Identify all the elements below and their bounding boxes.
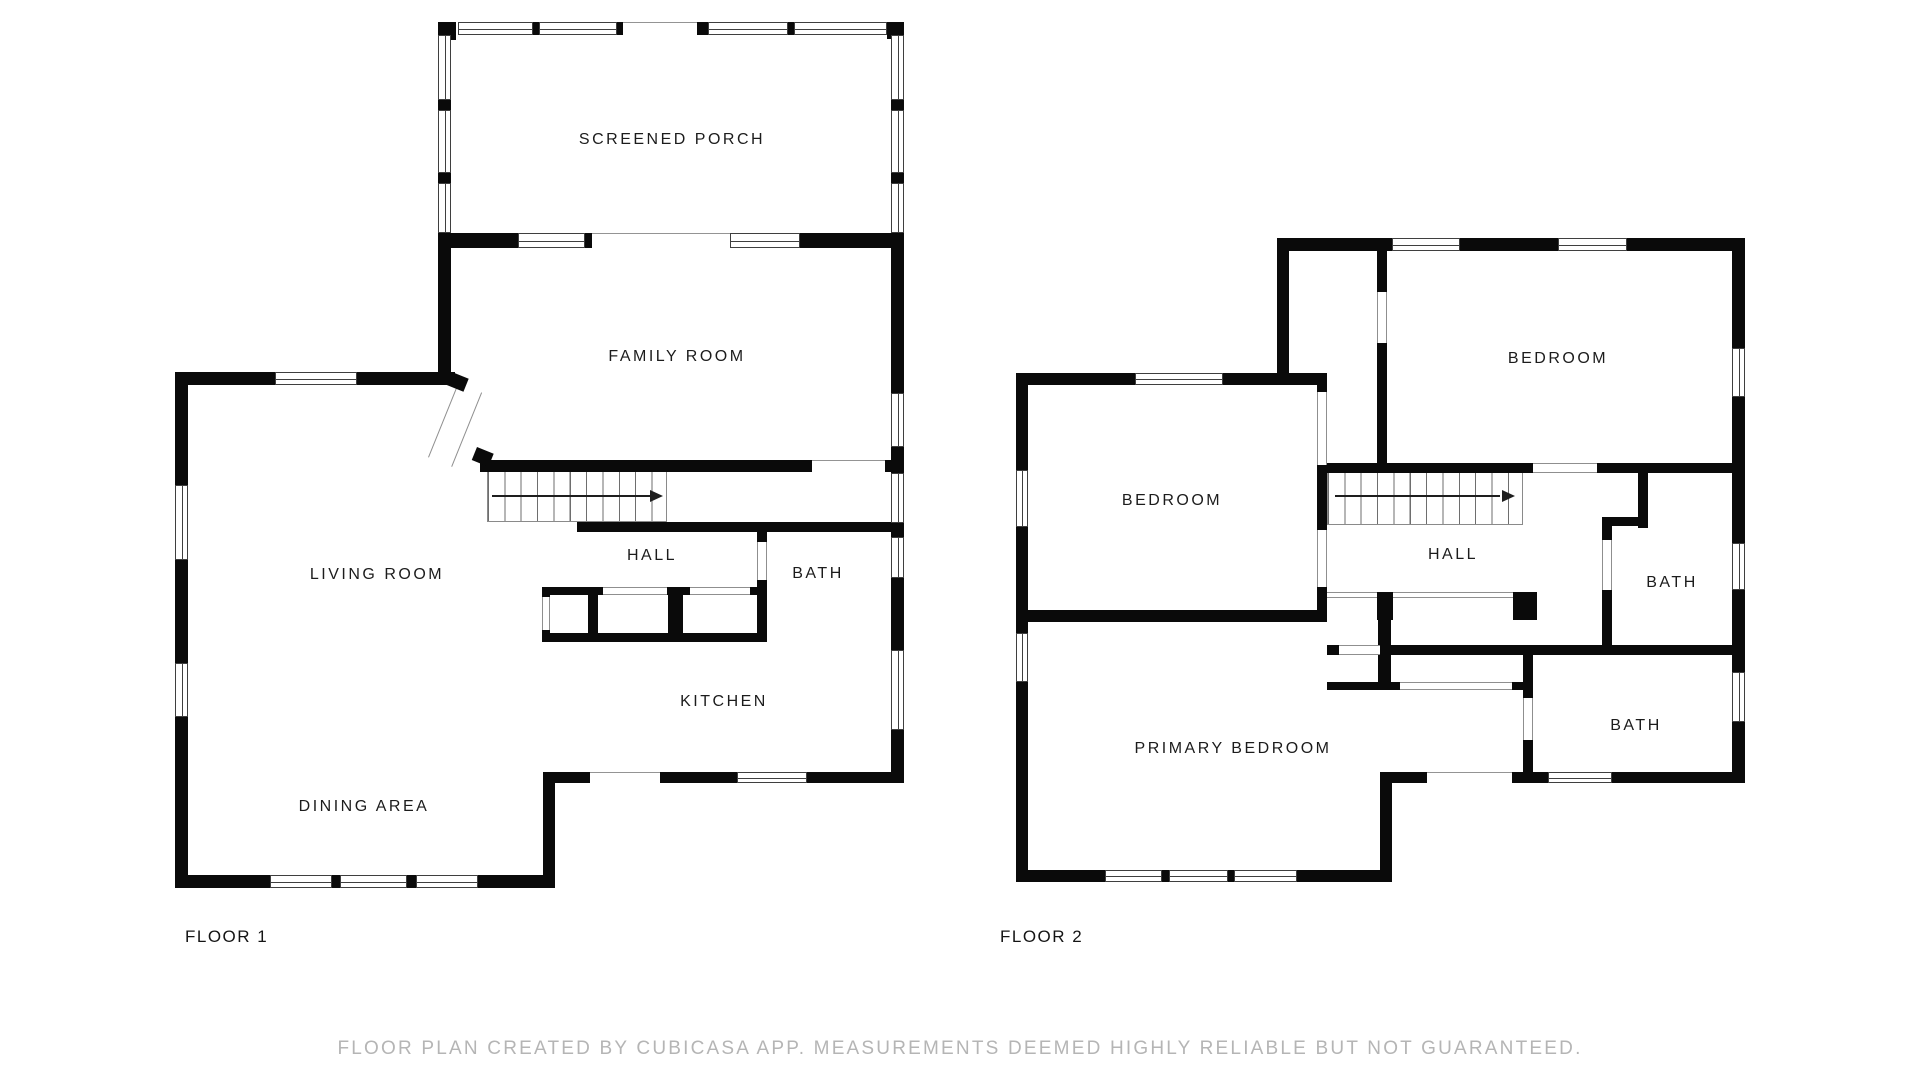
wall-segment — [1016, 870, 1105, 882]
wall-segment — [885, 460, 904, 472]
room-label-bedroom-northeast: BEDROOM — [1508, 350, 1608, 368]
floor1-label: FLOOR 1 — [185, 927, 268, 947]
wall-segment — [1607, 517, 1648, 526]
window — [518, 233, 585, 248]
room-label-bedroom-west: BEDROOM — [1122, 492, 1222, 510]
wall-opening — [623, 22, 697, 35]
wall-segment — [1297, 870, 1392, 882]
window — [1234, 870, 1297, 882]
wall-segment — [891, 578, 904, 650]
window — [891, 473, 904, 523]
wall-segment — [1016, 373, 1135, 385]
window — [1169, 870, 1228, 882]
door-opening — [1393, 592, 1513, 598]
wall-segment — [542, 633, 767, 642]
wall-segment — [891, 100, 904, 110]
wall-opening — [590, 772, 660, 783]
window — [175, 485, 188, 560]
wall-opening — [592, 233, 730, 248]
window — [438, 35, 451, 100]
wall-segment — [585, 233, 592, 248]
window — [891, 650, 904, 730]
window — [891, 537, 904, 578]
wall-segment — [1377, 343, 1387, 465]
wall-opening — [1427, 772, 1512, 783]
window — [1732, 672, 1745, 722]
door-opening — [1602, 540, 1612, 590]
room-label-hall-f2: HALL — [1428, 546, 1478, 564]
wall-segment — [1317, 385, 1327, 392]
door-opening — [690, 587, 750, 595]
wall-segment — [1597, 463, 1745, 473]
door-opening — [1327, 592, 1377, 598]
wall-segment — [1380, 645, 1745, 655]
wall-segment — [1327, 463, 1533, 473]
window — [1392, 238, 1460, 251]
wall-segment — [480, 460, 812, 472]
window — [1558, 238, 1627, 251]
room-label-hall-f1: HALL — [627, 547, 677, 565]
wall-segment — [175, 372, 188, 888]
wall-segment — [438, 100, 451, 110]
wall-segment — [1460, 238, 1558, 251]
door-opening — [603, 587, 667, 595]
window — [438, 183, 451, 233]
window — [891, 393, 904, 447]
wall-segment — [1162, 870, 1169, 882]
wall-segment — [1523, 645, 1533, 698]
window — [416, 875, 478, 888]
room-label-primary-bedroom: PRIMARY BEDROOM — [1135, 740, 1332, 758]
wall-segment — [750, 587, 767, 595]
wall-segment — [407, 875, 416, 888]
room-label-bath-f1: BATH — [792, 565, 843, 583]
wall-segment — [1378, 592, 1391, 690]
wall-segment — [1513, 592, 1537, 620]
wall-segment — [1380, 772, 1427, 783]
window — [891, 110, 904, 173]
wall-segment — [542, 587, 550, 597]
window — [270, 875, 332, 888]
room-label-bath-south: BATH — [1610, 717, 1661, 735]
wall-segment — [1377, 248, 1387, 292]
room-label-bath-east: BATH — [1646, 574, 1697, 592]
floor2-label: FLOOR 2 — [1000, 927, 1083, 947]
door-opening — [542, 597, 550, 630]
window — [1548, 772, 1612, 783]
room-label-kitchen: KITCHEN — [680, 693, 768, 711]
door-opening — [1339, 645, 1380, 655]
wall-opening — [812, 460, 885, 472]
staircase — [1327, 473, 1523, 525]
stair-direction-arrow-line — [1335, 495, 1500, 497]
floor-plan-canvas: SCREENED PORCH FAMILY ROOM LIVING ROOM H… — [0, 0, 1920, 1080]
wall-segment — [1317, 465, 1327, 530]
window — [737, 772, 807, 783]
window — [539, 22, 617, 35]
room-label-living-room: LIVING ROOM — [310, 566, 444, 584]
window — [1732, 348, 1745, 397]
window — [175, 663, 188, 717]
door-opening — [1523, 698, 1533, 740]
window — [275, 372, 357, 385]
wall-segment — [1277, 238, 1289, 385]
window — [891, 183, 904, 233]
wall-segment — [1327, 645, 1339, 655]
window — [1016, 633, 1028, 682]
door-opening — [1533, 463, 1597, 473]
door-opening — [1377, 292, 1387, 343]
wall-segment — [1512, 772, 1548, 783]
window — [438, 110, 451, 173]
wall-segment — [543, 772, 555, 888]
wall-segment — [332, 875, 340, 888]
wall-segment — [660, 772, 737, 783]
window — [1135, 373, 1223, 385]
window — [891, 35, 904, 100]
window — [794, 22, 887, 35]
wall-segment — [697, 22, 708, 35]
wall-segment — [1016, 373, 1028, 882]
window — [340, 875, 407, 888]
room-label-screened-porch: SCREENED PORCH — [579, 131, 765, 149]
wall-segment — [891, 233, 904, 393]
wall-segment — [1277, 238, 1392, 251]
door-opening — [1317, 530, 1327, 587]
wall-segment — [438, 233, 518, 248]
room-label-dining-area: DINING AREA — [299, 798, 430, 816]
wall-segment — [175, 875, 270, 888]
door-opening — [757, 542, 767, 580]
wall-segment — [1016, 610, 1327, 622]
disclaimer-text: FLOOR PLAN CREATED BY CUBICASA APP. MEAS… — [337, 1038, 1582, 1060]
wall-segment — [891, 173, 904, 183]
wall-segment — [1612, 772, 1745, 783]
stair-direction-arrow-head — [650, 490, 663, 502]
window — [708, 22, 788, 35]
door-opening — [1317, 392, 1327, 465]
wall-segment — [1627, 238, 1745, 251]
wall-segment — [1602, 517, 1612, 540]
wall-segment — [1223, 373, 1327, 385]
door-opening — [1400, 682, 1512, 690]
wall-segment — [577, 522, 904, 532]
window — [458, 22, 533, 35]
stair-direction-arrow-head — [1502, 490, 1515, 502]
wall-segment — [478, 875, 555, 888]
wall-segment — [1327, 682, 1400, 690]
wall-segment — [1380, 772, 1392, 882]
wall-segment — [438, 233, 451, 385]
wall-segment — [175, 372, 275, 385]
wall-segment — [438, 173, 451, 183]
wall-segment — [807, 772, 904, 783]
window — [1105, 870, 1162, 882]
window — [1732, 543, 1745, 590]
staircase — [487, 472, 667, 522]
wall-segment — [1523, 740, 1533, 772]
room-label-family-room: FAMILY ROOM — [608, 348, 745, 366]
stair-direction-arrow-line — [492, 495, 650, 497]
wall-segment — [800, 233, 904, 248]
window — [730, 233, 800, 248]
window — [1016, 470, 1028, 527]
wall-segment — [757, 532, 767, 542]
